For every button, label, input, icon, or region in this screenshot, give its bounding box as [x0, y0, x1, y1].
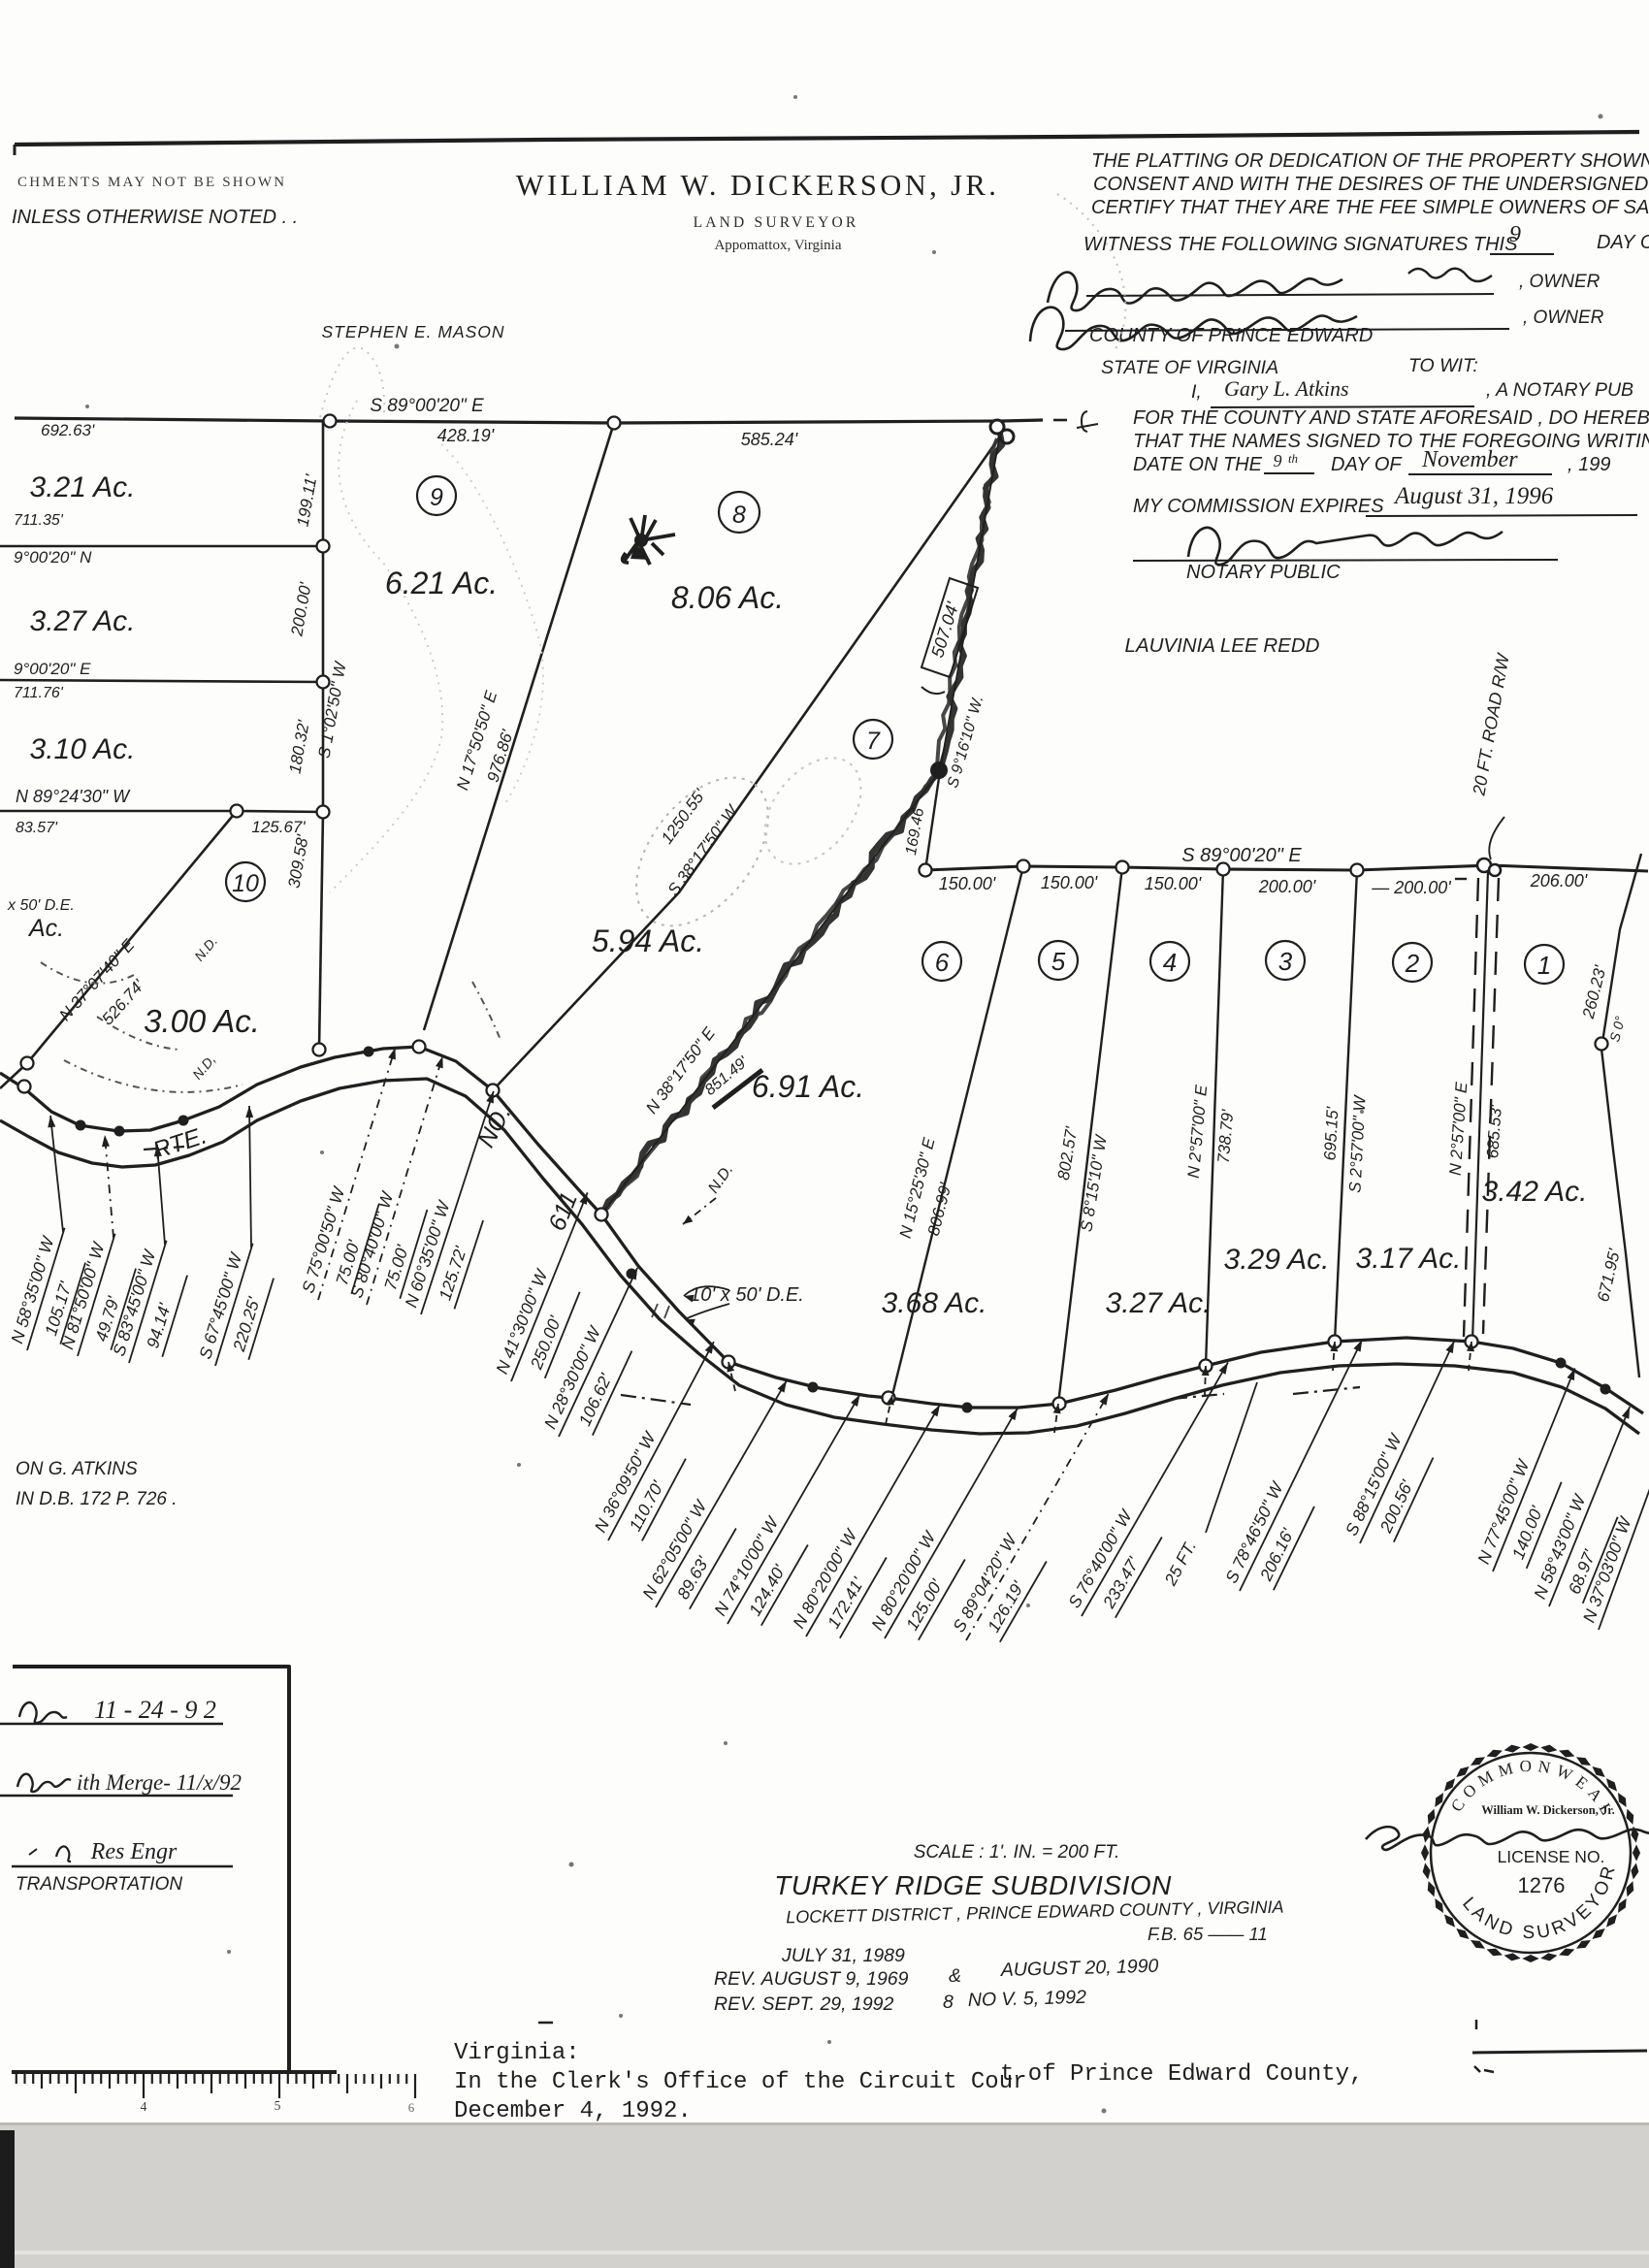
svg-text:10: 10: [232, 870, 259, 897]
svg-text:MY COMMISSION EXPIRES: MY COMMISSION EXPIRES: [1133, 496, 1384, 517]
svg-text:ith Merge- 11/x/92: ith Merge- 11/x/92: [77, 1770, 242, 1795]
svg-text:Ac.: Ac.: [27, 915, 64, 942]
svg-text:IN D.B. 172 P. 726 .: IN D.B. 172 P. 726 .: [16, 1489, 178, 1509]
svg-text:5: 5: [275, 2098, 281, 2113]
svg-text:SCALE : 1'. IN. = 200 FT.: SCALE : 1'. IN. = 200 FT.: [914, 1842, 1120, 1863]
svg-text:t of Prince Edward County,: t of Prince Edward County,: [1000, 2061, 1363, 2088]
svg-text:3.68 Ac.: 3.68 Ac.: [882, 1287, 987, 1319]
svg-text:&: &: [949, 1965, 961, 1987]
svg-text:6: 6: [408, 2100, 415, 2115]
svg-text:, OWNER: , OWNER: [1519, 272, 1600, 292]
svg-text:THE PLATTING OR DEDICATION OF: THE PLATTING OR DEDICATION OF THE PROPER…: [1091, 150, 1649, 172]
svg-text:3.42 Ac.: 3.42 Ac.: [1482, 1176, 1588, 1208]
svg-text:I,: I,: [1191, 381, 1202, 403]
svg-text:695.15': 695.15': [1321, 1106, 1342, 1161]
svg-text:3.27 Ac.: 3.27 Ac.: [30, 605, 136, 637]
svg-text:206.00': 206.00': [1530, 871, 1588, 891]
svg-text:December 4, 1992.: December 4, 1992.: [454, 2098, 692, 2124]
svg-text:x 50' D.E.: x 50' D.E.: [7, 897, 75, 914]
svg-text:LAND SURVEYOR: LAND SURVEYOR: [694, 214, 859, 231]
svg-text:TO WIT:: TO WIT:: [1408, 355, 1478, 376]
svg-text:F.B. 65 —— 11: F.B. 65 —— 11: [1148, 1924, 1268, 1944]
svg-text:585.24': 585.24': [741, 430, 798, 449]
svg-text:1: 1: [1537, 951, 1551, 980]
svg-text:3.10 Ac.: 3.10 Ac.: [30, 733, 136, 765]
svg-text:INLESS OTHERWISE NOTED . .: INLESS OTHERWISE NOTED . .: [12, 207, 298, 228]
svg-text:692.63': 692.63': [41, 421, 95, 439]
svg-text:DAY OF: DAY OF: [1331, 454, 1403, 475]
svg-text:3.17 Ac.: 3.17 Ac.: [1356, 1243, 1462, 1275]
svg-text:Res Engr: Res Engr: [90, 1839, 178, 1864]
svg-text:LAUVINIA LEE REDD: LAUVINIA LEE REDD: [1125, 634, 1320, 657]
svg-text:83.57': 83.57': [16, 820, 58, 836]
svg-text:CONSENT AND WITH THE DESIRES O: CONSENT AND WITH THE DESIRES OF THE UNDE…: [1093, 174, 1649, 195]
svg-text:125.67': 125.67': [251, 818, 306, 836]
svg-text:9°00'20" E: 9°00'20" E: [14, 660, 91, 678]
svg-text:Appomattox, Virginia: Appomattox, Virginia: [714, 238, 841, 253]
svg-text:DATE ON THE: DATE ON THE: [1133, 454, 1263, 475]
svg-text:11 - 24 - 9 2: 11 - 24 - 9 2: [94, 1696, 216, 1724]
svg-text:9: 9: [430, 484, 443, 511]
svg-text:FOR THE COUNTY AND STATE AFORE: FOR THE COUNTY AND STATE AFORESAID , DO …: [1133, 407, 1649, 429]
svg-text:3.29 Ac.: 3.29 Ac.: [1224, 1244, 1330, 1276]
svg-text:685.53': 685.53': [1483, 1104, 1505, 1159]
svg-text:150.00': 150.00': [939, 874, 996, 893]
svg-text:November: November: [1421, 447, 1518, 472]
svg-text:150.00': 150.00': [1041, 873, 1098, 892]
svg-text:NO V. 5, 1992: NO V. 5, 1992: [968, 1987, 1087, 2011]
svg-text:WILLIAM W. DICKERSON, JR.: WILLIAM W. DICKERSON, JR.: [516, 169, 999, 202]
svg-text:711.35': 711.35': [14, 512, 64, 529]
svg-text:, OWNER: , OWNER: [1523, 308, 1604, 328]
svg-text:STATE OF VIRGINIA: STATE OF VIRGINIA: [1101, 357, 1278, 378]
svg-text:6.21 Ac.: 6.21 Ac.: [385, 566, 498, 600]
svg-text:N 89°24'30" W: N 89°24'30" W: [16, 787, 131, 806]
svg-text:In the Clerk's Office of the C: In the Clerk's Office of the Circuit Cou…: [454, 2069, 1027, 2095]
svg-text:TRANSPORTATION: TRANSPORTATION: [16, 1874, 182, 1895]
svg-text:9: 9: [1274, 451, 1282, 470]
svg-text:AUGUST 20, 1990: AUGUST 20, 1990: [1000, 1956, 1159, 1981]
svg-text:7: 7: [866, 728, 881, 755]
svg-text:STEPHEN E. MASON: STEPHEN E. MASON: [321, 322, 504, 341]
svg-text:WITNESS THE FOLLOWING SIGNATUR: WITNESS THE FOLLOWING SIGNATURES THIS: [1083, 234, 1518, 255]
svg-text:4: 4: [141, 2099, 147, 2114]
svg-text:CERTIFY THAT THEY ARE THE FEE: CERTIFY THAT THEY ARE THE FEE SIMPLE OWN…: [1091, 197, 1649, 218]
svg-text:LICENSE NO.: LICENSE NO.: [1498, 1847, 1605, 1866]
svg-text:August 31, 1996: August 31, 1996: [1393, 483, 1554, 509]
svg-text:, 199: , 199: [1568, 454, 1610, 475]
svg-text:Virginia:: Virginia:: [454, 2040, 580, 2066]
svg-text:3.27 Ac.: 3.27 Ac.: [1106, 1287, 1212, 1319]
svg-text:TURKEY RIDGE SUBDIVISION: TURKEY RIDGE SUBDIVISION: [774, 1870, 1172, 1900]
svg-text:NOTARY PUBLIC: NOTARY PUBLIC: [1186, 562, 1341, 583]
svg-text:200.00': 200.00': [1258, 877, 1316, 896]
svg-text:ON G. ATKINS: ON G. ATKINS: [16, 1459, 138, 1479]
svg-text:9: 9: [1509, 222, 1521, 247]
svg-text:DAY C: DAY C: [1597, 232, 1649, 253]
svg-text:711.76': 711.76': [14, 685, 64, 701]
svg-text:6.91 Ac.: 6.91 Ac.: [752, 1069, 864, 1104]
svg-text:3.21 Ac.: 3.21 Ac.: [30, 471, 136, 503]
svg-text:150.00': 150.00': [1145, 874, 1202, 893]
svg-text:S 89°00'20" E: S 89°00'20" E: [1181, 845, 1302, 866]
svg-text:8: 8: [943, 1992, 954, 2013]
svg-text:REV. SEPT. 29, 1992: REV. SEPT. 29, 1992: [714, 1993, 894, 2015]
svg-text:5.94 Ac.: 5.94 Ac.: [592, 923, 704, 958]
svg-text:th: th: [1288, 451, 1298, 466]
svg-text:COUNTY OF PRINCE EDWARD: COUNTY OF PRINCE EDWARD: [1089, 325, 1373, 346]
svg-text:REV. AUGUST 9, 1969: REV. AUGUST 9, 1969: [714, 1968, 909, 1990]
svg-text:THAT THE NAMES SIGNED TO THE F: THAT THE NAMES SIGNED TO THE FOREGOING W…: [1133, 431, 1649, 452]
svg-text:CHMENTS MAY NOT BE SHOWN: CHMENTS MAY NOT BE SHOWN: [17, 175, 286, 190]
svg-text:5: 5: [1051, 947, 1066, 976]
svg-text:6: 6: [935, 948, 950, 977]
svg-text:JULY 31, 1989: JULY 31, 1989: [781, 1945, 905, 1966]
svg-text:4: 4: [1163, 948, 1177, 977]
svg-text:9°00'20" N: 9°00'20" N: [14, 548, 92, 567]
svg-text:William W. Dickerson, Jr.: William W. Dickerson, Jr.: [1481, 1803, 1615, 1817]
svg-text:3.00 Ac.: 3.00 Ac.: [144, 1003, 260, 1039]
svg-text:— 200.00': — 200.00': [1371, 878, 1451, 897]
svg-text:8.06 Ac.: 8.06 Ac.: [671, 580, 784, 615]
svg-text:3: 3: [1278, 947, 1293, 976]
svg-text:8: 8: [732, 502, 746, 529]
svg-text:, A NOTARY PUB: , A NOTARY PUB: [1486, 379, 1633, 401]
svg-text:Gary L. Atkins: Gary L. Atkins: [1224, 376, 1349, 401]
svg-text:2: 2: [1405, 949, 1420, 978]
svg-text:S 89°00'20" E: S 89°00'20" E: [370, 396, 484, 416]
svg-text:1276: 1276: [1518, 1873, 1566, 1897]
svg-text:428.19': 428.19': [437, 426, 495, 445]
svg-text:10' x 50' D.E.: 10' x 50' D.E.: [690, 1284, 804, 1306]
